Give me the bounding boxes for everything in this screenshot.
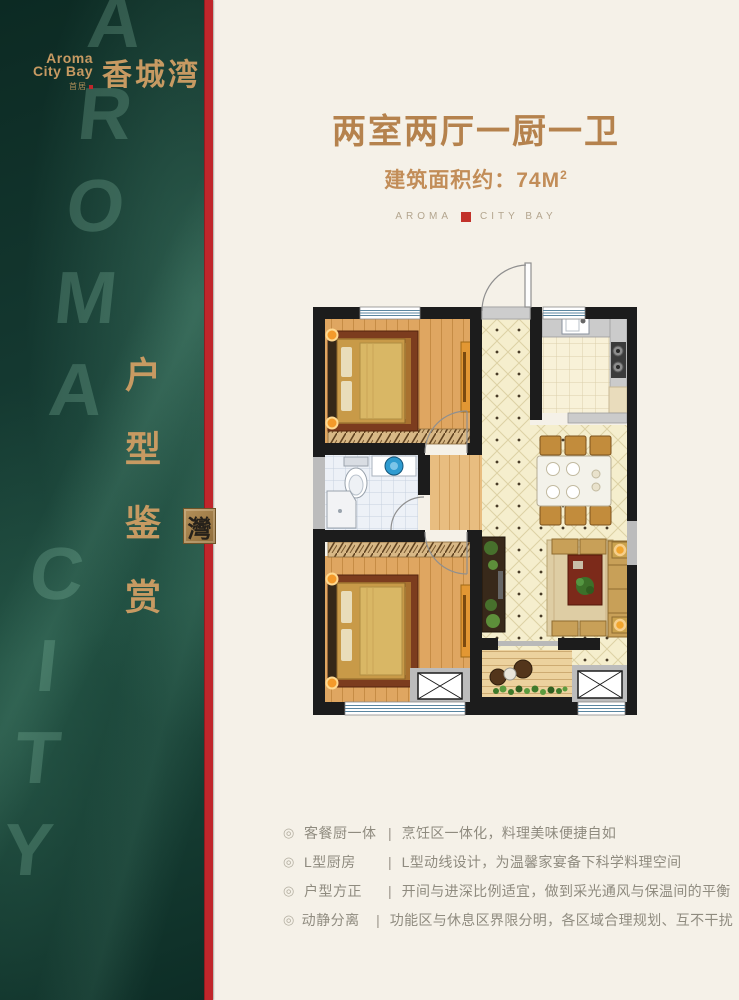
features-list: ◎ 客餐厨一体 | 烹饪区一体化，料理美味便捷自如 ◎ L型厨房 | L型动线设… [283, 818, 733, 934]
feature-bullet-icon: ◎ [283, 854, 304, 870]
feature-name: 户型方正 [304, 881, 388, 901]
entry-door-leaf [525, 263, 531, 307]
stool-icon [490, 669, 506, 685]
feature-item: ◎ 动静分离 | 功能区与休息区界限分明，各区域合理规划、互不干扰 [283, 905, 733, 934]
brand-logo: Aroma City Bay 首居 香城湾 [33, 50, 201, 94]
feature-separator: | [388, 854, 392, 870]
feature-description: 功能区与休息区界限分明，各区域合理规划、互不干扰 [390, 910, 733, 930]
window-icon [360, 307, 420, 319]
feature-description: L型动线设计，为温馨家宴备下科学料理空间 [402, 852, 682, 872]
chair-icon [540, 436, 561, 455]
unit-type-title: 两室两厅一厨一卫 [213, 104, 739, 153]
feature-bullet-icon: ◎ [283, 883, 304, 899]
bathroom-outer-wall [313, 457, 325, 529]
feature-item: ◎ L型厨房 | L型动线设计，为温馨家宴备下科学料理空间 [283, 847, 733, 876]
area-label: 建筑面积约：74M [384, 169, 560, 192]
lamp-icon [615, 620, 625, 630]
feature-item: ◎ 客餐厨一体 | 烹饪区一体化，料理美味便捷自如 [283, 818, 733, 847]
feature-description: 烹饪区一体化，料理美味便捷自如 [402, 823, 617, 843]
logo-subtitle: 首居 [33, 81, 93, 92]
brand-red-square-icon [461, 212, 471, 222]
feature-separator: | [376, 912, 380, 928]
feature-name: 客餐厨一体 [304, 823, 388, 843]
dining-set [537, 436, 611, 525]
brand-row: AROMA CITY BAY [213, 211, 739, 222]
chair-icon [540, 506, 561, 525]
brand-logo-en: Aroma City Bay 首居 [33, 52, 93, 92]
lamp-icon [327, 330, 338, 341]
vestibule-floor [430, 455, 482, 530]
lamp-icon [327, 418, 338, 429]
living-room-furniture [482, 537, 628, 637]
feature-bullet-icon: ◎ [283, 912, 302, 928]
sofa-seat [580, 539, 606, 554]
entry-door-arc [482, 265, 526, 311]
feature-bullet-icon: ◎ [283, 825, 304, 841]
red-divider-stripe [204, 0, 213, 1000]
vertical-page-title: 户型鉴赏 [119, 356, 161, 652]
logo-cn-name: 香城湾 [102, 50, 201, 94]
floor-plan [310, 253, 644, 723]
lamp-icon [327, 574, 338, 585]
window-icon [543, 307, 585, 319]
stool-icon [514, 660, 532, 678]
chair-icon [565, 436, 586, 455]
page-header: 两室两厅一厨一卫 建筑面积约：74M2 AROMA CITY BAY [213, 104, 739, 222]
logo-sub-text: 首居 [69, 81, 87, 92]
chair-icon [590, 436, 611, 455]
feature-separator: | [388, 825, 392, 841]
brand-right-text: CITY BAY [480, 211, 557, 222]
chair-icon [590, 506, 611, 525]
sliding-door [498, 641, 558, 646]
living-window [627, 521, 637, 565]
entry-threshold [482, 307, 530, 319]
window-icon [345, 702, 465, 715]
area-text: 建筑面积约：74M2 [213, 164, 739, 194]
small-table-icon [504, 668, 516, 680]
sofa-seat [552, 621, 578, 636]
fabric-highlight-2 [0, 0, 204, 1000]
poster-page: AROMA CITY BAY Aroma City Bay 首居 香城湾 户型鉴… [0, 0, 739, 1000]
feature-name: 动静分离 [302, 910, 377, 930]
lamp-icon [327, 678, 338, 689]
area-superscript: 2 [560, 168, 568, 182]
kitchen-floor [542, 337, 610, 413]
feature-separator: | [388, 883, 392, 899]
logo-red-square-icon [89, 85, 93, 89]
brand-seal-stamp: 灣 [183, 508, 216, 544]
chair-icon [565, 506, 586, 525]
brand-left-text: AROMA [395, 211, 452, 222]
bed-headboard [328, 583, 337, 679]
shower-icon [327, 491, 356, 528]
sidebar: AROMA CITY BAY Aroma City Bay 首居 香城湾 户型鉴… [0, 0, 204, 1000]
feature-description: 开间与进深比例适宜，做到采光通风与保温间的平衡 [402, 881, 731, 901]
window-icon [578, 702, 625, 715]
sofa-seat [580, 621, 606, 636]
feature-item: ◎ 户型方正 | 开间与进深比例适宜，做到采光通风与保温间的平衡 [283, 876, 733, 905]
logo-en-line2: City Bay [33, 65, 93, 78]
wardrobe-2 [328, 542, 470, 557]
bed-headboard [328, 339, 337, 423]
feature-name: L型厨房 [304, 852, 388, 872]
lamp-icon [615, 545, 625, 555]
sofa-seat [552, 539, 578, 554]
